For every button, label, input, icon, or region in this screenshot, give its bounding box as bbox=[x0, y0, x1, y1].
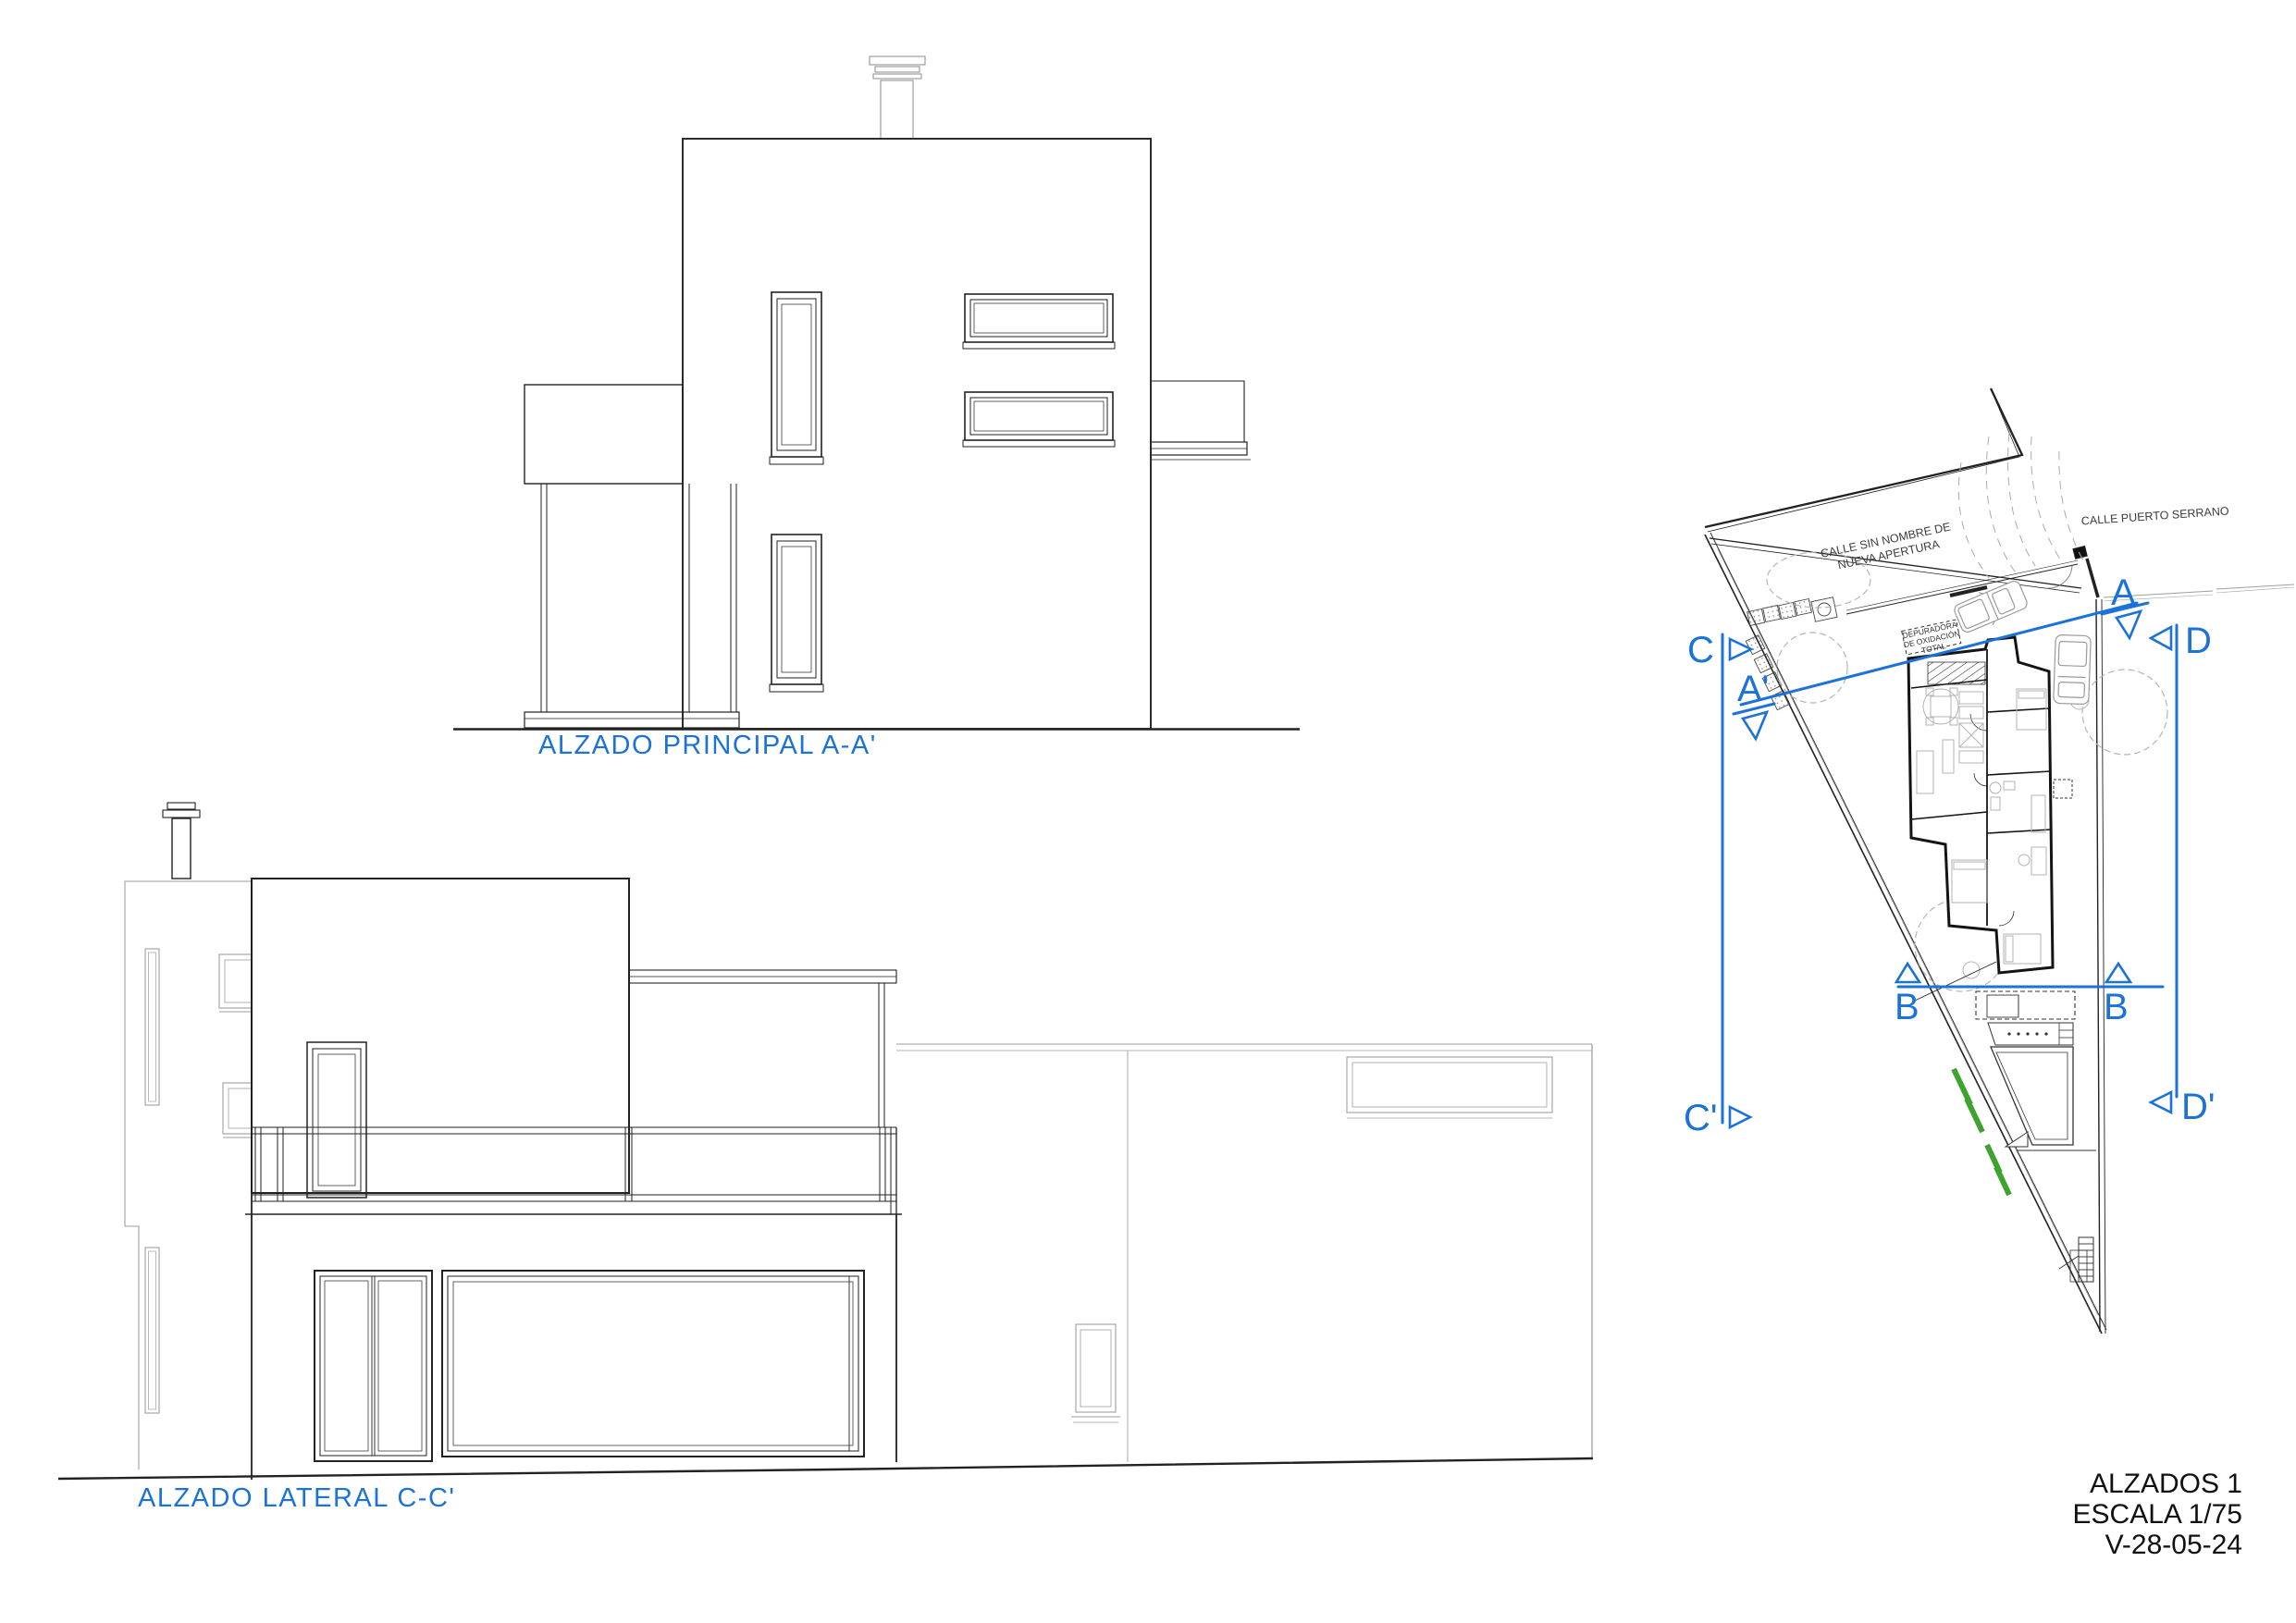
sheet-scale: ESCALA 1/75 bbox=[2073, 1499, 2242, 1530]
street-label-puerto-serrano: CALLE PUERTO SERRANO bbox=[2080, 504, 2229, 527]
pool-terrace bbox=[1976, 991, 2096, 1150]
marker-b-left: B bbox=[1895, 987, 1920, 1027]
ground-line bbox=[58, 1458, 1593, 1479]
elevation-lateral-label: ALZADO LATERAL C-C' bbox=[138, 1483, 455, 1514]
car-driveway bbox=[1952, 577, 2031, 637]
car-east bbox=[2054, 634, 2092, 704]
pool bbox=[1991, 1047, 2073, 1145]
marker-d: D bbox=[2185, 621, 2212, 661]
street-labels: CALLE SIN NOMBRE DE NUEVA APERTURA CALLE… bbox=[1820, 504, 2229, 574]
marker-b-right: B bbox=[2104, 987, 2129, 1027]
chimney bbox=[870, 56, 925, 139]
sheet-version: V-28-05-24 bbox=[2073, 1530, 2242, 1560]
single-storey-volume bbox=[896, 1044, 1592, 1462]
marker-c: C bbox=[1687, 630, 1714, 670]
marker-d-prime: D' bbox=[2181, 1087, 2216, 1127]
elevation-lateral-drawing bbox=[58, 803, 1593, 1480]
ground-floor-wall bbox=[252, 1193, 896, 1480]
marker-a-prime: A' bbox=[1737, 669, 1769, 709]
glazed-door-a bbox=[315, 1271, 432, 1461]
title-block: ALZADOS 1 ESCALA 1/75 V-28-05-24 bbox=[2073, 1469, 2242, 1560]
background-volume bbox=[125, 881, 264, 1469]
drawing-sheet: DEPURADORA DE OXIDACIÓN TOTAL bbox=[0, 0, 2296, 1623]
marker-a: A bbox=[2111, 572, 2136, 613]
side-ledge bbox=[1151, 381, 1251, 460]
glazed-window-b bbox=[442, 1271, 864, 1457]
roof-slab bbox=[629, 970, 896, 1127]
street-boundary bbox=[1705, 388, 2022, 532]
utility-dashed-box bbox=[2054, 780, 2072, 798]
chimney bbox=[163, 803, 200, 879]
elevation-principal-label: ALZADO PRINCIPAL A-A' bbox=[538, 731, 877, 761]
main-volume bbox=[683, 139, 1151, 729]
site-plan-drawing: DEPURADORA DE OXIDACIÓN TOTAL bbox=[1684, 388, 2294, 1334]
elevation-principal-drawing bbox=[453, 56, 1300, 730]
main-volume bbox=[252, 879, 629, 1193]
sheet-title: ALZADOS 1 bbox=[2073, 1469, 2242, 1499]
marker-c-prime: C' bbox=[1684, 1098, 1718, 1138]
